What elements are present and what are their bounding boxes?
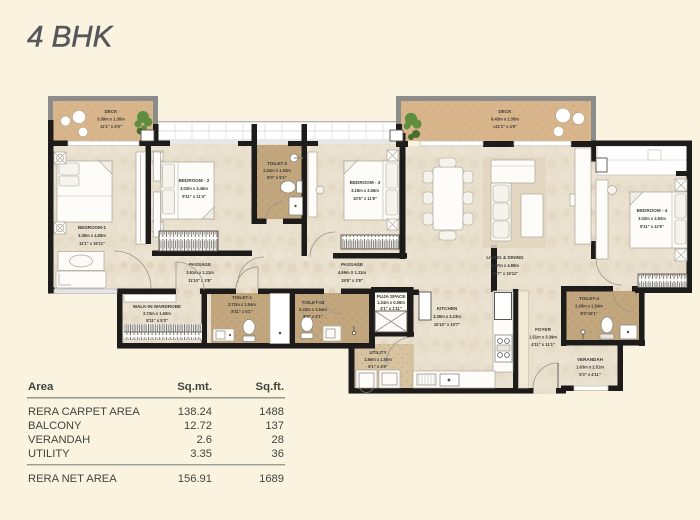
svg-text:6'1" x 4'9": 6'1" x 4'9" bbox=[368, 364, 388, 369]
svg-text:8'11" x 5'3": 8'11" x 5'3" bbox=[146, 318, 168, 323]
svg-text:VERANDAH: VERANDAH bbox=[577, 357, 604, 362]
svg-text:PASSAGE: PASSAGE bbox=[189, 262, 211, 267]
svg-text:UTILITY: UTILITY bbox=[28, 448, 70, 460]
svg-text:BALCONY: BALCONY bbox=[28, 420, 82, 432]
svg-text:9'11" x 12'6": 9'11" x 12'6" bbox=[640, 224, 664, 229]
svg-text:1488: 1488 bbox=[259, 406, 284, 418]
svg-text:3.03m x 3.82m: 3.03m x 3.82m bbox=[638, 216, 666, 221]
svg-text:9'11" x 11'4": 9'11" x 11'4" bbox=[182, 194, 206, 199]
svg-text:DECK: DECK bbox=[104, 109, 118, 114]
svg-text:Sq.mt.: Sq.mt. bbox=[177, 381, 212, 393]
svg-text:3.39m x 1.35m: 3.39m x 1.35m bbox=[97, 117, 125, 122]
svg-text:11'1" x 4'5": 11'1" x 4'5" bbox=[100, 124, 122, 129]
svg-text:TOILET-03: TOILET-03 bbox=[302, 300, 325, 305]
svg-text:Area: Area bbox=[28, 381, 54, 393]
svg-text:RERA NET AREA: RERA NET AREA bbox=[28, 473, 117, 485]
svg-text:5'3" x 4'11": 5'3" x 4'11" bbox=[579, 372, 601, 377]
svg-text:1689: 1689 bbox=[259, 473, 284, 485]
svg-text:BEDROOM - 4: BEDROOM - 4 bbox=[637, 208, 668, 213]
svg-text:2.73m x 1.60m: 2.73m x 1.60m bbox=[143, 311, 171, 316]
svg-text:10'10" x 10'7": 10'10" x 10'7" bbox=[434, 322, 460, 327]
svg-text:TOILET-2: TOILET-2 bbox=[267, 161, 288, 166]
svg-text:11'10" x 3'8": 11'10" x 3'8" bbox=[188, 278, 212, 283]
svg-text:8'11" x 5'1": 8'11" x 5'1" bbox=[231, 309, 253, 314]
svg-text:DECK: DECK bbox=[498, 109, 512, 114]
svg-text:3.39m x 3.23m: 3.39m x 3.23m bbox=[433, 314, 461, 319]
svg-text:8'0"x5'1": 8'0"x5'1" bbox=[580, 311, 597, 316]
svg-text:11'1" x 15'11": 11'1" x 15'11" bbox=[79, 241, 105, 246]
svg-text:1.63m x 1.51m: 1.63m x 1.51m bbox=[576, 365, 604, 370]
svg-text:138.24: 138.24 bbox=[178, 406, 212, 418]
svg-text:20'7" x 15'11": 20'7" x 15'11" bbox=[492, 271, 518, 276]
svg-text:3.03m x 3.46m: 3.03m x 3.46m bbox=[180, 186, 208, 191]
svg-text:LIVING & DINING: LIVING & DINING bbox=[486, 255, 524, 260]
svg-text:≈21'1" x 4'5": ≈21'1" x 4'5" bbox=[493, 124, 517, 129]
svg-text:6.27m x 4.85m: 6.27m x 4.85m bbox=[491, 263, 519, 268]
svg-text:3.39m x 4.85m: 3.39m x 4.85m bbox=[78, 233, 106, 238]
svg-text:156.91: 156.91 bbox=[178, 473, 212, 485]
svg-text:VERANDAH: VERANDAH bbox=[28, 434, 90, 446]
svg-text:2.72m x 1.54m: 2.72m x 1.54m bbox=[228, 302, 256, 307]
svg-text:2.43m x 1.54m: 2.43m x 1.54m bbox=[299, 307, 327, 312]
svg-text:28: 28 bbox=[272, 434, 284, 446]
svg-text:BEDROOM-1: BEDROOM-1 bbox=[78, 225, 107, 230]
svg-text:1.51m x 3.39m: 1.51m x 3.39m bbox=[529, 335, 557, 340]
svg-text:2.43m x 1.54m: 2.43m x 1.54m bbox=[263, 168, 291, 173]
svg-text:10'5" x 11'8": 10'5" x 11'8" bbox=[353, 196, 377, 201]
svg-text:3.35: 3.35 bbox=[190, 448, 212, 460]
svg-text:4 BHK: 4 BHK bbox=[27, 21, 114, 54]
svg-text:WALK-IN WARDROBE: WALK-IN WARDROBE bbox=[133, 304, 181, 309]
svg-text:4'1" x 1'11": 4'1" x 1'11" bbox=[380, 306, 402, 311]
svg-text:6.43m x 1.35m: 6.43m x 1.35m bbox=[491, 117, 519, 122]
svg-text:1.86m x 1.50m: 1.86m x 1.50m bbox=[364, 357, 392, 362]
svg-text:15'5" x 3'8": 15'5" x 3'8" bbox=[341, 278, 363, 283]
svg-text:12.72: 12.72 bbox=[184, 420, 212, 432]
svg-text:KITCHEN: KITCHEN bbox=[437, 306, 458, 311]
svg-text:2.43m x 1.54m: 2.43m x 1.54m bbox=[575, 304, 603, 309]
svg-text:TOILET-4: TOILET-4 bbox=[579, 296, 600, 301]
svg-text:PASSAGE: PASSAGE bbox=[341, 262, 363, 267]
svg-text:137: 137 bbox=[265, 420, 284, 432]
svg-text:UTILITY: UTILITY bbox=[369, 350, 386, 355]
svg-text:4'11" x 11'1": 4'11" x 11'1" bbox=[531, 342, 555, 347]
svg-text:3.18m x 3.56m: 3.18m x 3.56m bbox=[351, 188, 379, 193]
svg-text:FOYER: FOYER bbox=[535, 327, 552, 332]
svg-text:BEDROOM - 2: BEDROOM - 2 bbox=[179, 178, 210, 183]
svg-text:PUJA SPACE: PUJA SPACE bbox=[377, 294, 406, 299]
svg-text:8'0" x 5'1": 8'0" x 5'1" bbox=[267, 175, 287, 180]
svg-text:3.61m x 1.11m: 3.61m x 1.11m bbox=[186, 270, 214, 275]
svg-text:BEDROOM - 3: BEDROOM - 3 bbox=[350, 180, 381, 185]
svg-text:8'0" x 5'1": 8'0" x 5'1" bbox=[303, 314, 323, 319]
svg-text:Sq.ft.: Sq.ft. bbox=[256, 381, 284, 393]
svg-text:36: 36 bbox=[272, 448, 284, 460]
svg-text:TOILET-1: TOILET-1 bbox=[232, 295, 253, 300]
svg-text:2.6: 2.6 bbox=[196, 434, 212, 446]
svg-text:4.69m X 1.11m: 4.69m X 1.11m bbox=[338, 270, 366, 275]
svg-text:RERA CARPET AREA: RERA CARPET AREA bbox=[28, 406, 140, 418]
svg-text:1.24m x 0.58m: 1.24m x 0.58m bbox=[377, 300, 405, 305]
